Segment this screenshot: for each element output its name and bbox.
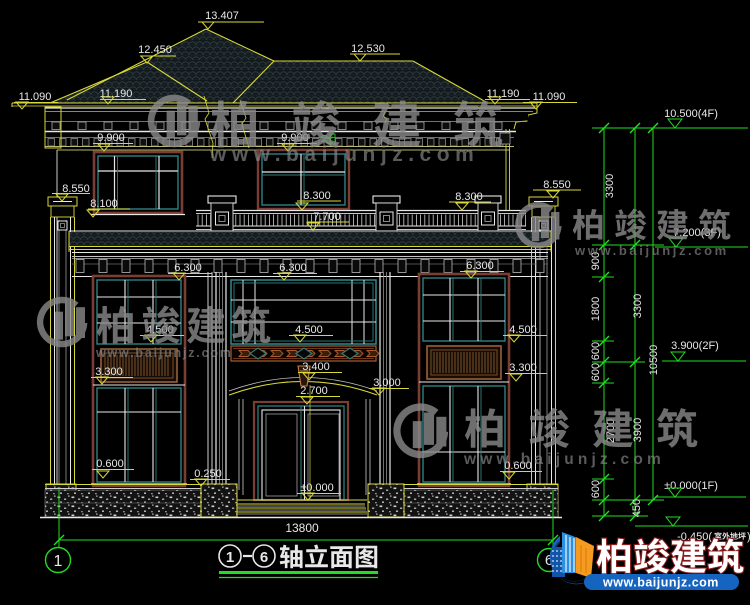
svg-text:9.900: 9.900 [97,132,125,144]
svg-text:10500: 10500 [648,345,660,376]
svg-text:www.baijunjz.com: www.baijunjz.com [574,243,729,258]
svg-text:±0.000: ±0.000 [300,482,334,494]
svg-text:www.baijunjz.com: www.baijunjz.com [95,346,233,360]
svg-text:0.600: 0.600 [96,458,124,470]
svg-text:4.500: 4.500 [509,324,537,336]
svg-text:600: 600 [590,342,602,360]
svg-text:11.190: 11.190 [100,88,133,100]
svg-text:8.100: 8.100 [90,198,118,210]
svg-text:13800: 13800 [285,521,319,535]
svg-text:600: 600 [590,363,602,381]
svg-text:12.450: 12.450 [138,44,172,56]
svg-text:0.250: 0.250 [194,468,222,480]
svg-text:11.090: 11.090 [19,91,52,103]
svg-text:1: 1 [54,553,63,570]
svg-text:8.300: 8.300 [455,191,483,203]
svg-text:±0.000(1F): ±0.000(1F) [664,480,718,492]
svg-text:13.407: 13.407 [205,10,239,22]
svg-text:12.530: 12.530 [351,43,385,55]
svg-text:7.700: 7.700 [313,211,341,223]
svg-text:6.300: 6.300 [279,262,307,274]
svg-text:600: 600 [590,480,602,498]
svg-text:www.baijunjz.com: www.baijunjz.com [463,451,665,468]
svg-text:11.090: 11.090 [533,91,566,103]
svg-text:3.300: 3.300 [95,366,123,378]
svg-text:8.300: 8.300 [303,190,331,202]
svg-text:3300: 3300 [632,294,644,318]
svg-text:3300: 3300 [604,174,616,198]
svg-text:3.400: 3.400 [302,361,330,373]
svg-text:1800: 1800 [590,297,602,321]
svg-text:450: 450 [631,499,643,517]
svg-text:www.baijunjz.com: www.baijunjz.com [209,143,479,166]
svg-text:8.550: 8.550 [543,179,571,191]
svg-text:6.300: 6.300 [174,262,202,274]
svg-text:11.190: 11.190 [487,88,520,100]
svg-text:3900: 3900 [632,418,644,442]
svg-text:3.300: 3.300 [509,362,537,374]
svg-text:1: 1 [226,549,234,566]
svg-text:6: 6 [260,549,268,566]
svg-text:3.000: 3.000 [373,377,401,389]
svg-text:2.700: 2.700 [300,385,328,397]
svg-text:4.500: 4.500 [295,324,323,336]
svg-text:6.300: 6.300 [466,260,494,272]
svg-text:www.baijunjz.com: www.baijunjz.com [602,576,719,590]
svg-text:10.500(4F): 10.500(4F) [664,108,718,120]
svg-text:3.900(2F): 3.900(2F) [671,340,719,352]
